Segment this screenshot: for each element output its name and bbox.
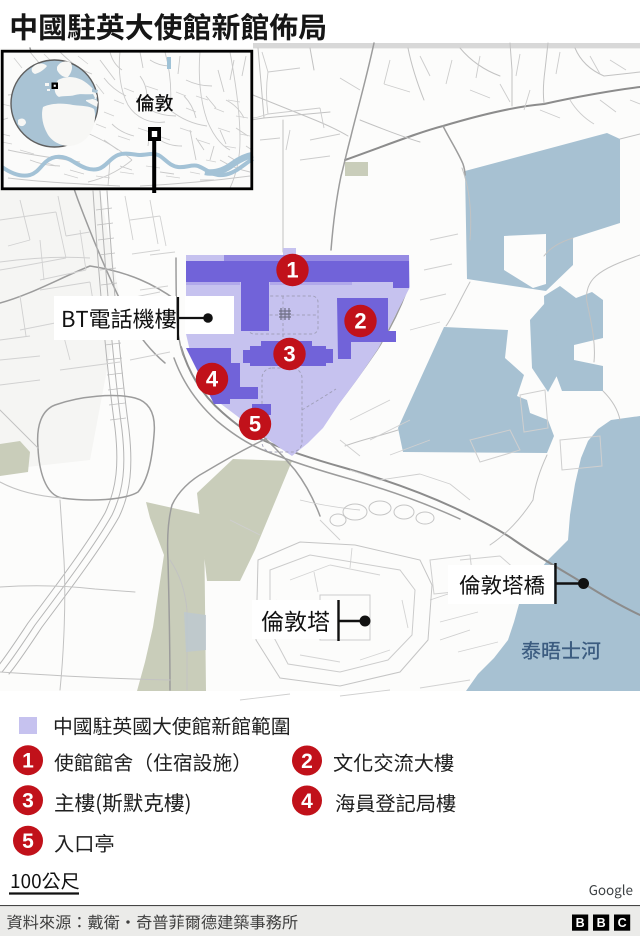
- svg-text:5: 5: [249, 412, 261, 437]
- svg-text:3: 3: [283, 342, 295, 367]
- svg-text:4: 4: [206, 367, 219, 392]
- svg-text:1: 1: [286, 258, 298, 283]
- svg-text:B: B: [576, 916, 585, 930]
- svg-text:3: 3: [22, 790, 34, 813]
- svg-text:C: C: [618, 916, 627, 930]
- svg-text:2: 2: [301, 750, 313, 773]
- svg-text:2: 2: [354, 309, 366, 334]
- svg-text:5: 5: [22, 830, 34, 853]
- svg-text:4: 4: [301, 790, 313, 813]
- svg-text:1: 1: [22, 750, 34, 773]
- svg-text:B: B: [597, 916, 606, 930]
